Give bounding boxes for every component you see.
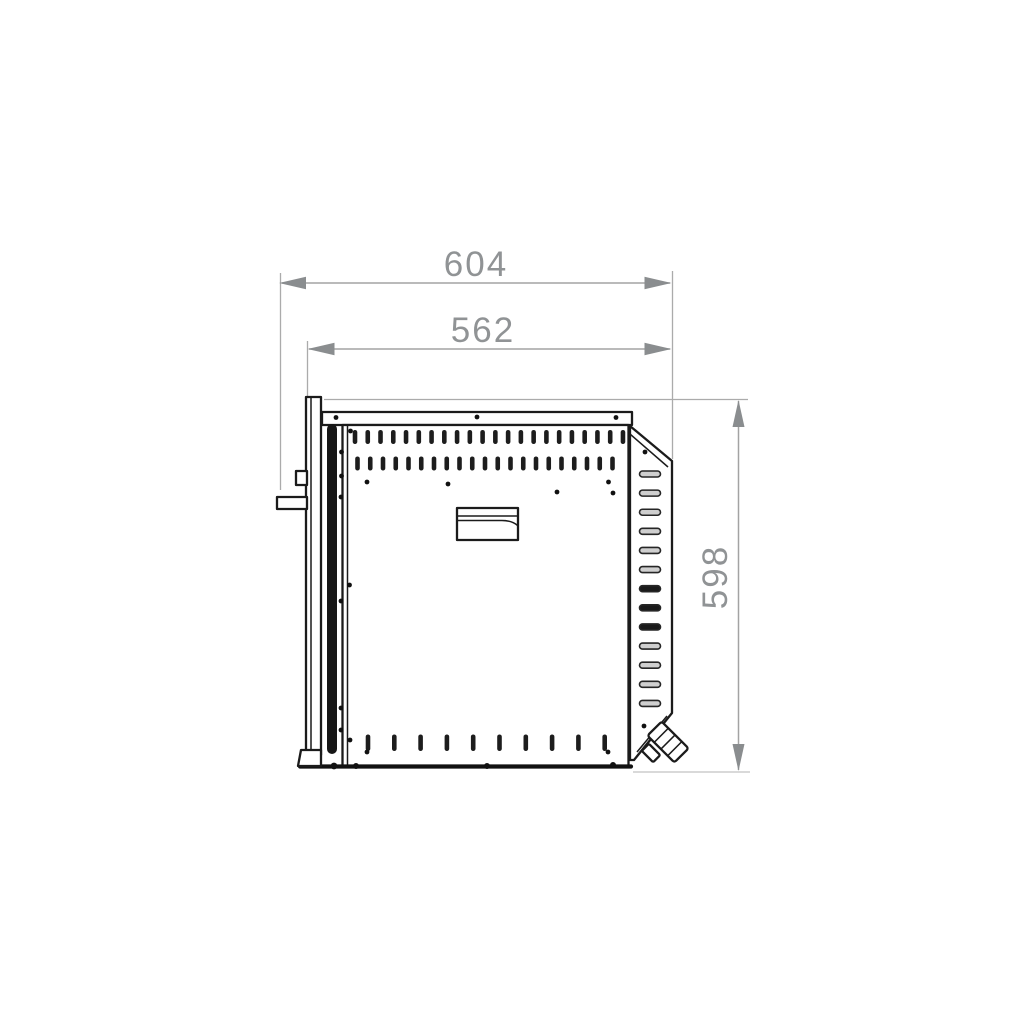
vent-slot xyxy=(442,430,447,444)
rating-plate xyxy=(457,508,518,540)
vent-slot xyxy=(483,457,488,471)
vent-flap-slot xyxy=(640,567,661,573)
vent-flap-slot xyxy=(640,586,661,592)
arrow-up-icon xyxy=(733,400,745,427)
vent-slot xyxy=(559,457,564,471)
screw-dot xyxy=(555,490,560,495)
arrow-left-icon xyxy=(279,277,306,289)
door-gasket xyxy=(327,424,337,754)
screw-dot xyxy=(334,415,339,420)
screw-dot xyxy=(339,495,344,500)
vent-flap-slot xyxy=(640,547,661,553)
screw-dot xyxy=(614,415,619,420)
arrow-right-icon xyxy=(645,343,672,355)
screw-dot xyxy=(643,450,648,455)
vent-flap-slot xyxy=(640,662,661,668)
drawing-svg: 604 562 598 xyxy=(0,0,1024,1024)
vent-slot xyxy=(445,735,450,752)
rating-plate-outline xyxy=(457,508,518,540)
vent-slot xyxy=(432,457,437,471)
vent-slot xyxy=(582,430,587,444)
screw-dot xyxy=(339,599,344,604)
vent-slot xyxy=(455,430,460,444)
vent-slot xyxy=(610,457,615,471)
vent-slot xyxy=(595,430,600,444)
hinge-notch xyxy=(296,471,307,485)
vent-slot xyxy=(531,430,536,444)
vent-slot xyxy=(353,430,358,444)
screw-dot xyxy=(484,763,490,769)
vent-slot xyxy=(621,430,626,444)
vent-slot xyxy=(418,735,423,752)
door-base-foot xyxy=(298,750,321,766)
arrow-left-icon xyxy=(308,343,335,355)
vent-slot xyxy=(521,457,526,471)
arrow-right-icon xyxy=(645,277,672,289)
vent-slot xyxy=(602,735,607,752)
vent-slot xyxy=(495,457,500,471)
door-handle xyxy=(277,497,307,509)
vent-slot xyxy=(444,457,449,471)
screw-dot xyxy=(353,763,359,769)
vent-flap-slot xyxy=(640,643,661,649)
vent-slots-top-row-2 xyxy=(355,457,615,471)
vent-slot xyxy=(355,457,360,471)
vent-flap-slot xyxy=(640,509,661,515)
vent-slot xyxy=(468,430,473,444)
vent-flap-slot xyxy=(640,490,661,496)
vent-slot xyxy=(429,430,434,444)
appliance-body xyxy=(300,412,647,769)
screw-dot xyxy=(365,480,370,485)
vent-slot xyxy=(572,457,577,471)
screw-dot xyxy=(339,728,344,733)
vent-slot xyxy=(406,457,411,471)
vent-slot xyxy=(557,430,562,444)
screw-dot xyxy=(611,491,616,496)
vent-slot xyxy=(480,430,485,444)
vent-slot xyxy=(544,430,549,444)
screw-dot xyxy=(339,450,344,455)
vent-flap-slot xyxy=(640,471,661,477)
vent-slot xyxy=(493,430,498,444)
screw-dot xyxy=(606,750,611,755)
screw-dot xyxy=(348,738,353,743)
vent-slot xyxy=(608,430,613,444)
screw-dot xyxy=(331,763,338,770)
vent-slot xyxy=(366,735,371,752)
vent-slot xyxy=(365,430,370,444)
vent-slot xyxy=(508,457,513,471)
screw-dot xyxy=(642,724,647,729)
vent-flap-slot xyxy=(640,605,661,611)
vent-slot xyxy=(576,735,581,752)
vent-slot xyxy=(550,735,555,752)
vent-flap-slot xyxy=(640,681,661,687)
vent-slot xyxy=(471,735,476,752)
vent-slot xyxy=(381,457,386,471)
vent-flap-slot xyxy=(640,700,661,706)
vent-slot xyxy=(506,430,511,444)
vent-slot xyxy=(570,430,575,444)
door-panel xyxy=(306,397,321,755)
screw-dot xyxy=(339,474,344,479)
vent-slot xyxy=(585,457,590,471)
vent-slot xyxy=(497,735,502,752)
screw-dot xyxy=(446,482,451,487)
screw-dot xyxy=(339,706,344,711)
dimension-label-604: 604 xyxy=(444,245,508,284)
vent-flap-slot xyxy=(640,528,661,534)
vent-slot xyxy=(546,457,551,471)
dimension-body-depth: 562 xyxy=(308,311,672,396)
vent-slot xyxy=(393,457,398,471)
screw-dot xyxy=(348,429,353,434)
vent-flap-slot xyxy=(640,624,661,630)
vent-slot xyxy=(457,457,462,471)
vent-slot xyxy=(391,430,396,444)
vent-slot xyxy=(417,430,422,444)
screw-dot xyxy=(610,762,616,768)
vent-flap xyxy=(630,426,689,763)
dimension-label-562: 562 xyxy=(451,311,515,350)
dimension-label-598: 598 xyxy=(696,545,735,609)
vent-slot xyxy=(378,430,383,444)
vent-slot xyxy=(470,457,475,471)
technical-drawing: 604 562 598 xyxy=(0,0,1024,1024)
arrow-down-icon xyxy=(733,744,745,771)
vent-slot xyxy=(519,430,524,444)
vent-slot xyxy=(419,457,424,471)
vent-slot xyxy=(404,430,409,444)
vent-slot xyxy=(524,735,529,752)
screw-dot xyxy=(606,480,611,485)
screw-dot xyxy=(475,415,480,420)
screw-dot xyxy=(365,750,370,755)
vent-slot xyxy=(597,457,602,471)
door-assembly xyxy=(277,397,337,766)
vent-slot xyxy=(392,735,397,752)
side-panel xyxy=(343,425,629,766)
vent-slot xyxy=(368,457,373,471)
screw-dot xyxy=(347,583,352,588)
vent-slot xyxy=(534,457,539,471)
